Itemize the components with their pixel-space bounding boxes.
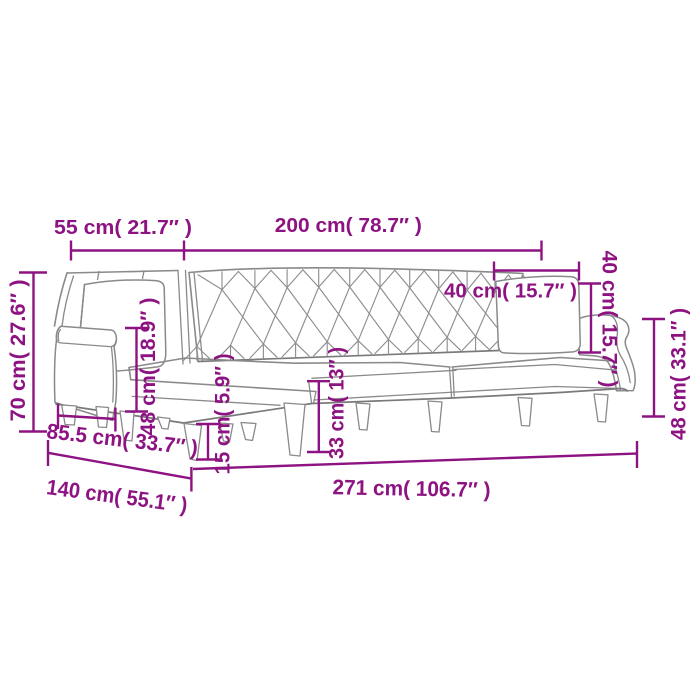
svg-text:271 cm( 106.7″ ): 271 cm( 106.7″ ) [332,476,490,502]
svg-text:40 cm( 15.7″ ): 40 cm( 15.7″ ) [598,251,621,388]
svg-text:55 cm( 21.7″ ): 55 cm( 21.7″ ) [54,217,192,239]
svg-text:70 cm( 27.6″ ): 70 cm( 27.6″ ) [7,280,30,422]
svg-text:200 cm( 78.7″ ): 200 cm( 78.7″ ) [275,215,422,237]
svg-text:33 cm( 13″ ): 33 cm( 13″ ) [326,347,349,459]
svg-text:48 cm( 33.1″ ): 48 cm( 33.1″ ) [668,308,691,440]
svg-text:15 cm( 5.9″ ): 15 cm( 5.9″ ) [212,354,235,475]
svg-text:48 cm( 18.9″ ): 48 cm( 18.9″ ) [137,298,160,436]
svg-text:40 cm( 15.7″ ): 40 cm( 15.7″ ) [444,280,577,302]
svg-text:140 cm( 55.1″ ): 140 cm( 55.1″ ) [45,475,189,517]
